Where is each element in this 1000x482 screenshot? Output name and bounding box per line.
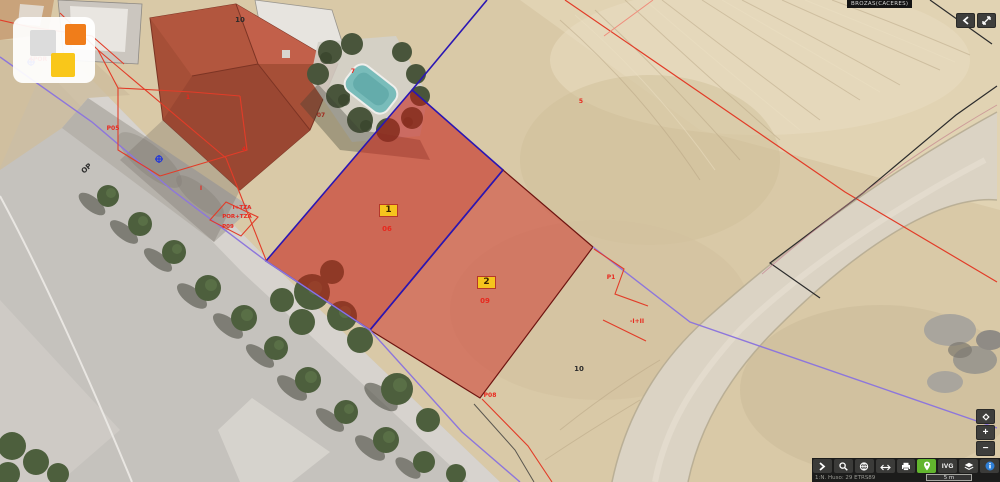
map-label: 4: [242, 146, 246, 153]
cartography-layers-button[interactable]: [959, 459, 978, 473]
printer-icon: [901, 459, 911, 474]
zoom-in-button[interactable]: +: [976, 425, 995, 440]
fullscreen-button[interactable]: [977, 13, 996, 28]
scale-bar: 5 m: [926, 474, 972, 481]
recenter-button[interactable]: [976, 409, 995, 424]
loading-square-yellow: [51, 53, 75, 77]
map-label: 1: [186, 94, 190, 101]
coordinates-text: 1:N. Huso: 29 ETRS89: [815, 475, 875, 481]
diamond-icon: [982, 413, 990, 421]
info-button[interactable]: [980, 459, 999, 473]
map-label: -I+II: [630, 318, 644, 325]
zoom-search-button[interactable]: [834, 459, 853, 473]
measure-button[interactable]: [876, 459, 895, 473]
map-label: 10: [574, 365, 584, 373]
chevron-right-icon: [819, 459, 826, 474]
municipality-label: BROZAS(CACERES): [847, 0, 912, 8]
globe-icon: [859, 459, 869, 474]
scale-label: 5 m: [944, 475, 955, 481]
info-circle-icon: [985, 459, 995, 474]
loading-square-orange: [65, 24, 86, 45]
ortophoto-button[interactable]: [855, 459, 874, 473]
pin-tool-button[interactable]: [917, 459, 936, 473]
map-label: I: [200, 185, 202, 192]
map-label: 06: [382, 225, 392, 233]
zoom-out-button[interactable]: −: [976, 441, 995, 456]
ivg-label: IVG: [942, 463, 954, 470]
status-bar: 1:N. Huso: 29 ETRS89 5 m: [812, 474, 1000, 482]
print-button[interactable]: [897, 459, 916, 473]
chevron-left-icon: [962, 16, 970, 25]
map-label: 10: [235, 16, 245, 24]
parcel-1-marker[interactable]: 1: [379, 204, 398, 217]
map-label: P09: [222, 224, 234, 230]
map-pin-icon: [923, 459, 931, 474]
collapse-panel-button[interactable]: [956, 13, 975, 28]
map-label: P1: [607, 274, 616, 281]
map-label: P08: [484, 392, 497, 399]
layers-icon: [964, 459, 974, 474]
parcel-2-marker[interactable]: 2: [477, 276, 496, 289]
map-canvas[interactable]: 4PORP05110074II+TZAPOR+TZAP09OP750609P1-…: [0, 0, 1000, 482]
expand-tools-button[interactable]: [813, 459, 832, 473]
map-label: 09: [480, 297, 490, 305]
magnifier-icon: [839, 459, 848, 474]
bottom-toolbar: IVG: [812, 458, 1000, 474]
tile-loading-indicator: [13, 17, 95, 83]
ivg-button[interactable]: IVG: [938, 459, 957, 473]
map-label: 5: [579, 98, 583, 105]
map-label: POR+TZA: [222, 214, 252, 220]
left-right-arrow-icon: [880, 459, 891, 474]
map-label: P05: [107, 125, 120, 132]
expand-arrows-icon: [982, 16, 991, 25]
map-label: I+TZA: [233, 205, 252, 211]
catastro-map-viewer: 4PORP05110074II+TZAPOR+TZAP09OP750609P1-…: [0, 0, 1000, 482]
map-label: 07: [317, 112, 325, 119]
map-label: 7: [351, 68, 355, 75]
